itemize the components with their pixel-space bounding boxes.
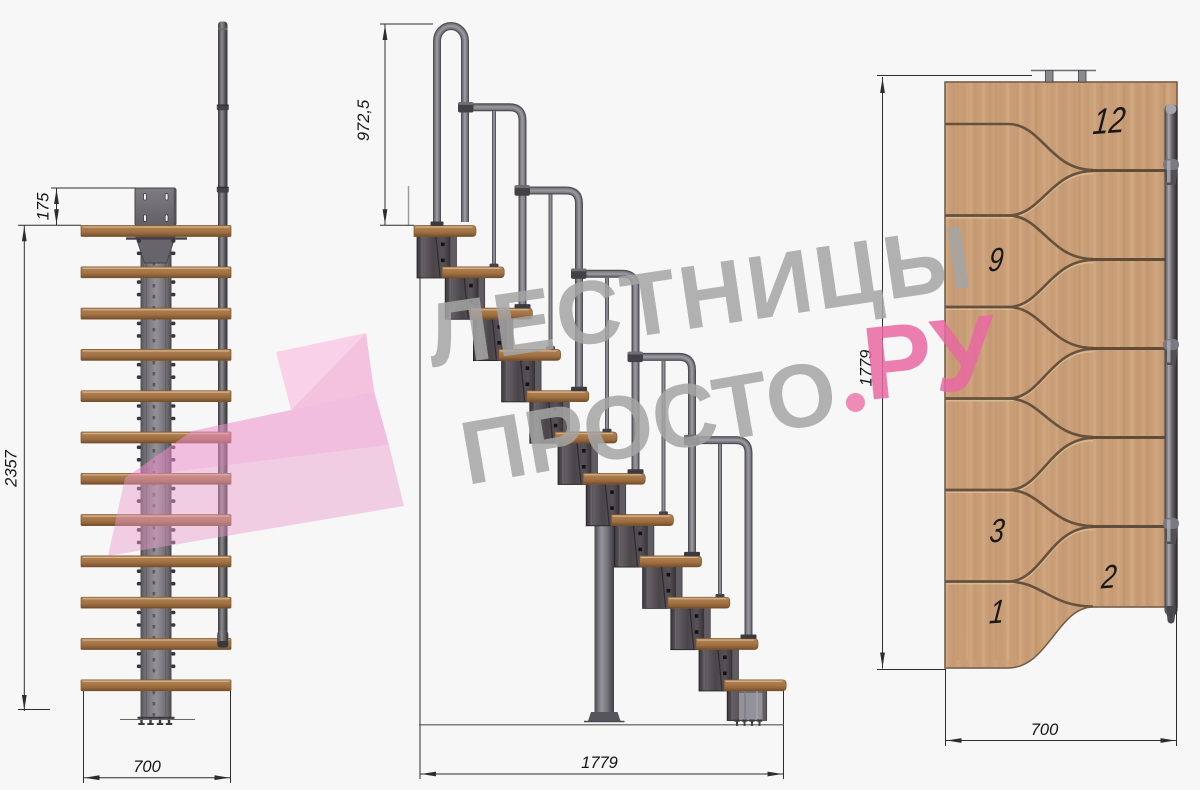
svg-text:12: 12 [1091,99,1127,142]
svg-text:2357: 2357 [3,449,21,488]
svg-text:175: 175 [35,192,53,220]
svg-text:РУ: РУ [857,293,1003,422]
svg-text:700: 700 [1031,721,1059,739]
svg-text:1779: 1779 [581,754,618,772]
svg-text:972,5: 972,5 [355,99,373,141]
svg-text:700: 700 [133,758,161,776]
